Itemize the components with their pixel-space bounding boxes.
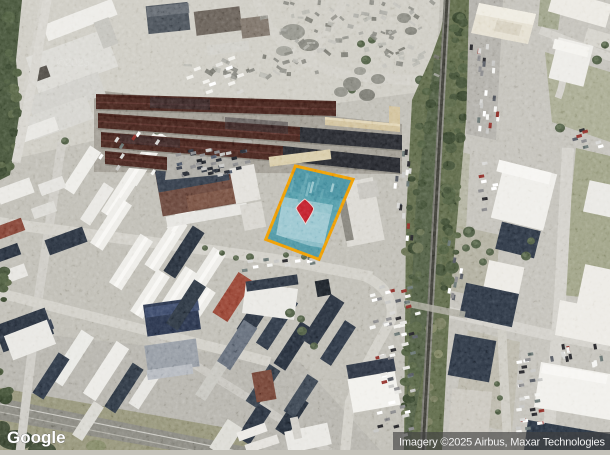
svg-text:Imagery ©2025 Airbus, Maxar Te: Imagery ©2025 Airbus, Maxar Technologies bbox=[399, 437, 606, 449]
svg-text:©2025: ©2025 bbox=[57, 57, 90, 69]
svg-text:Google: Google bbox=[7, 428, 66, 447]
